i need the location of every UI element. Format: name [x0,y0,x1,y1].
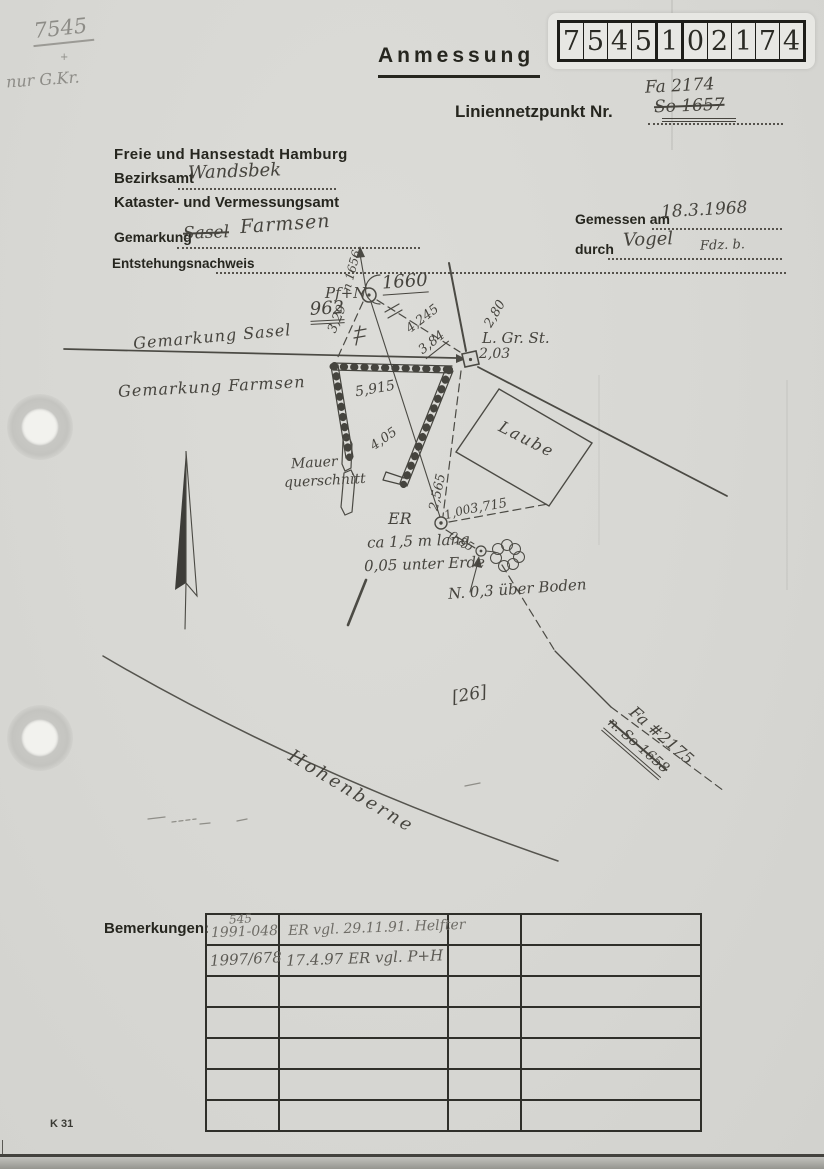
tree-symbol [491,540,525,572]
bemerkungen-table: 545 1991-048 ER vgl. 29.11.91. Helfter 1… [205,913,702,1132]
table-row [206,1100,701,1131]
table-row [206,1007,701,1038]
bemerkungen-cell [448,914,521,945]
table-row [206,1038,701,1069]
sasel-strike-symbol [354,326,366,345]
table-row [206,976,701,1007]
entry-1991-048: 1991-048 [211,923,279,941]
label-1660: 1660 [381,269,428,295]
boundary-line [64,349,456,358]
label-grenzstein: L. Gr. St. [482,329,550,347]
label-mauer-1: Mauer [291,454,338,472]
grenzstein-dot [469,358,472,361]
bemerkungen-cell [521,914,701,945]
bemerkungen-label: Bemerkungen: [104,920,209,937]
entry-1997-678: 1997/678 [210,948,283,970]
tie-to-southeast-b [555,651,611,707]
table-row: 1997/678 17.4.97 ER vgl. P+H [206,945,701,976]
label-er: ER [388,509,412,528]
table-row [206,1069,701,1100]
er-point-dot [439,521,442,524]
entry-er-vgl-1991: ER vgl. 29.11.91. Helfter [288,917,466,939]
form-code: K 31 [50,1118,73,1130]
table-row: 545 1991-048 ER vgl. 29.11.91. Helfter [206,914,701,945]
pencil-stroke [348,580,366,625]
bemerkungen-cell [448,945,521,976]
pf-n-point-dot [367,293,370,296]
entry-er-vgl-1997: 17.4.97 ER vgl. P+H [286,946,444,969]
bemerkungen-cell: 545 1991-048 [206,914,279,945]
scan-edge-area [0,1157,824,1169]
bemerkungen-cell: ER vgl. 29.11.91. Helfter [279,914,448,945]
tie-2-565 [443,371,461,516]
faint-marks [148,783,480,824]
hohenberne-curve [103,656,558,861]
scanned-survey-document: 7545 + nur G.Kr. Anmessung 7 5 4 5 1 0 2… [0,0,824,1169]
bemerkungen-cell: 1997/678 [206,945,279,976]
bemerkungen-cell [521,945,701,976]
north-arrow [175,451,197,629]
line-to-grenzstein [449,263,466,351]
label-2-03: 2,03 [479,346,510,362]
bemerkungen-cell: 17.4.97 ER vgl. P+H [279,945,448,976]
